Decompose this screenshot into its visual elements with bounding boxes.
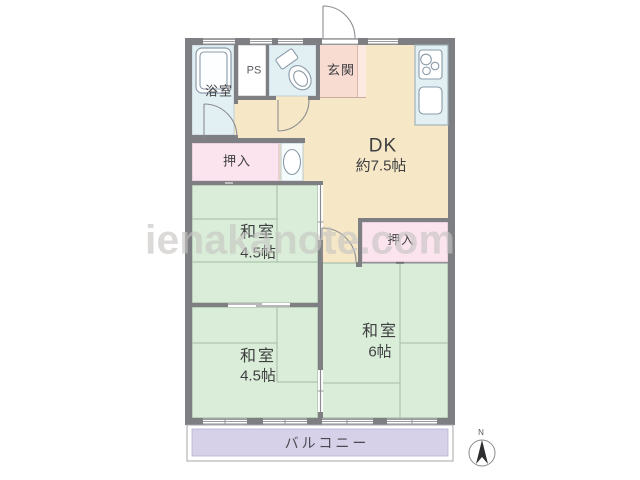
balcony-label: バルコニー [285,436,370,450]
wall-closet1-top [192,138,305,143]
wall-bath-right [234,45,238,104]
room-upper-size: 4.5帖 [240,246,276,261]
windows-top [203,39,398,45]
floorplan-canvas: 浴室 PS 玄関 DK 約7.5帖 押入 和室 4.5帖 押入 和室 6帖 和室… [0,0,640,480]
wall-ps-toilet [266,45,269,97]
entrance-label: 玄関 [327,64,355,77]
wall-closet2-left [358,218,362,262]
wall-closet2-top [358,218,448,222]
wall-right [448,38,455,425]
wall-room-lower-right-b [318,412,323,418]
wall-mid-a [192,303,228,307]
closet1-label: 押入 [223,155,251,168]
washbasin-icon [284,150,301,175]
japanese-room-right-floor [322,263,448,418]
compass [469,440,495,466]
wall-room-lower-right-a [318,307,323,370]
closet2-label: 押入 [387,234,414,247]
kitchen-sink-icon [419,87,442,114]
dk-label: DK [369,137,397,156]
pipe-space-label: PS [247,66,262,77]
entrance-door-swing [323,6,355,38]
room-right-size: 6帖 [368,345,391,360]
room-right-label: 和室 [362,324,398,340]
wall-room-upper-top [185,181,323,185]
wall-left [185,38,192,425]
entrance-step [357,45,366,97]
wall-ps-bottom [238,96,276,100]
compass-needle-icon [476,440,488,464]
bathroom-label: 浴室 [205,85,233,98]
room-upper-label: 和室 [240,225,276,241]
room-lower-label: 和室 [240,349,276,365]
floorplan-drawing [0,0,640,480]
wall-dkdoor-b [356,262,362,267]
wall-mid-b [290,303,318,307]
dk-size-label: 約7.5帖 [356,159,407,174]
wall-toilet-entrance [316,45,320,97]
wall-dkdoor-a [318,262,322,267]
compass-north-label: N [478,429,484,437]
room-lower-size: 4.5帖 [240,369,276,384]
